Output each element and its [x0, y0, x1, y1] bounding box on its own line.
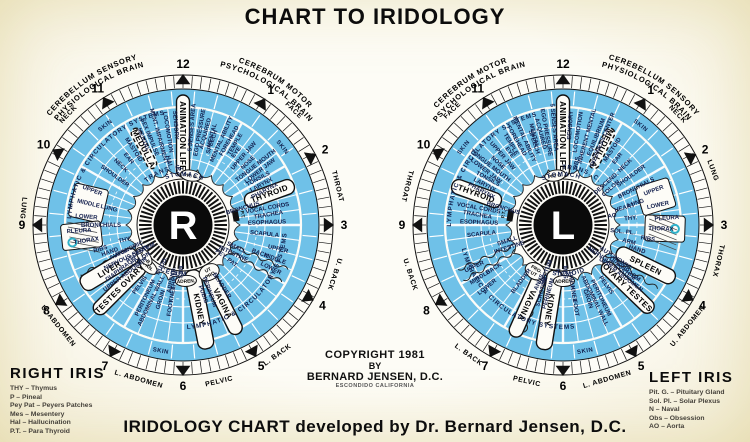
- svg-text:6: 6: [560, 379, 567, 393]
- svg-text:12: 12: [556, 57, 570, 71]
- page-title: CHART TO IRIDOLOGY: [0, 4, 750, 30]
- svg-text:5: 5: [258, 359, 265, 373]
- copyright-line: BERNARD JENSEN, D.C.: [280, 371, 470, 383]
- svg-text:11: 11: [471, 81, 484, 95]
- svg-text:U. BACK: U. BACK: [401, 258, 418, 292]
- svg-text:THROAT: THROAT: [330, 170, 345, 203]
- svg-text:9: 9: [19, 218, 26, 232]
- legend-item: Sol. Pl. – Solar Plexus: [649, 398, 733, 407]
- copyright-block: COPYRIGHT 1981 BY BERNARD JENSEN, D.C. E…: [280, 349, 470, 389]
- svg-text:12: 12: [176, 57, 190, 71]
- svg-text:5: 5: [638, 359, 645, 373]
- svg-text:10: 10: [37, 138, 51, 152]
- svg-text:THORAX: THORAX: [648, 226, 674, 233]
- svg-text:PELVIC: PELVIC: [512, 375, 541, 388]
- svg-text:3: 3: [341, 218, 348, 232]
- left-iris-legend-title: LEFT IRIS: [649, 369, 733, 386]
- svg-text:THROAT: THROAT: [399, 170, 414, 203]
- svg-text:3: 3: [721, 218, 728, 232]
- copyright-line: ESCONDIDO CALIFORNIA: [280, 383, 470, 389]
- legend-item: Pey Pat – Peyers Patches: [10, 402, 105, 411]
- svg-text:10: 10: [417, 138, 431, 152]
- svg-text:L: L: [551, 204, 575, 248]
- svg-text:7: 7: [482, 359, 489, 373]
- iridology-chart-page: CHART TO IRIDOLOGY RANIMATION LIFEMEDULL…: [0, 0, 750, 442]
- chart-caption: IRIDOLOGY CHART developed by Dr. Bernard…: [0, 417, 750, 437]
- svg-text:9: 9: [399, 218, 406, 232]
- svg-text:2: 2: [322, 142, 329, 156]
- svg-text:4: 4: [319, 299, 326, 313]
- svg-text:LUNG: LUNG: [18, 197, 27, 220]
- svg-text:LUNG: LUNG: [705, 159, 719, 182]
- svg-text:1: 1: [267, 83, 274, 97]
- legend-item: N – Naval: [649, 406, 733, 415]
- right-iris-legend-title: RIGHT IRIS: [10, 365, 105, 382]
- svg-text:11: 11: [91, 81, 104, 95]
- svg-text:8: 8: [423, 303, 430, 317]
- svg-text:2: 2: [702, 142, 709, 156]
- svg-text:R: R: [169, 204, 198, 248]
- svg-text:4: 4: [699, 299, 706, 313]
- svg-text:6: 6: [180, 379, 187, 393]
- legend-item: P – Pineal: [10, 394, 105, 403]
- copyright-line: BY: [280, 361, 470, 371]
- legend-item: THY – Thymus: [10, 385, 105, 394]
- svg-text:1: 1: [647, 83, 654, 97]
- legend-item: Pit. G. – Pituitary Gland: [649, 389, 733, 398]
- svg-text:ANIMATION LIFE: ANIMATION LIFE: [558, 101, 567, 171]
- svg-text:8: 8: [43, 303, 50, 317]
- svg-text:THORAX: THORAX: [711, 244, 725, 278]
- copyright-line: COPYRIGHT 1981: [280, 349, 470, 361]
- svg-text:BRONCHIALS: BRONCHIALS: [81, 223, 121, 229]
- svg-text:PELVIC: PELVIC: [205, 375, 234, 388]
